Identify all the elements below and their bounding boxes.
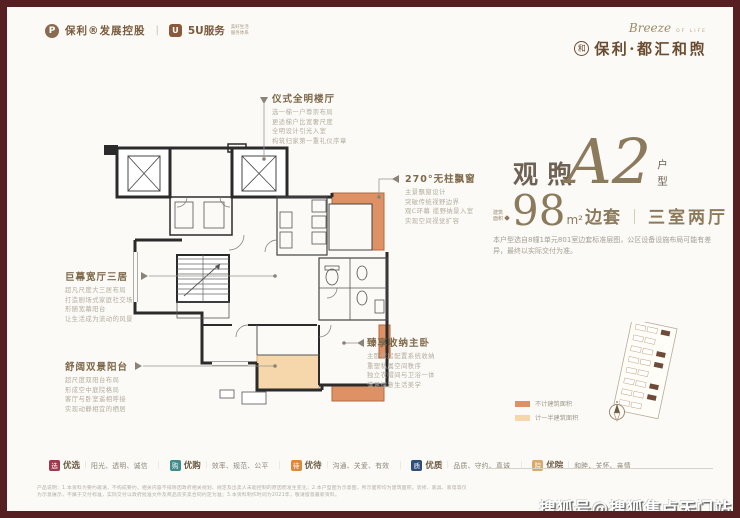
area-spec-row: 建筑 面积 98 m² 边套 ｜ 三室两厅: [493, 193, 728, 229]
feature-name: 优院: [546, 459, 563, 471]
feature-name: 优选: [63, 459, 80, 471]
poly-logo-icon: P: [45, 24, 59, 38]
callout-living-title: 巨幕宽厅三居: [65, 269, 185, 283]
kitchen-appliances: [280, 200, 326, 248]
area-unit: m²: [566, 213, 583, 227]
callout-line: 选一梯一户尊崇布局: [272, 108, 392, 118]
feature-name: 优待: [305, 459, 322, 471]
callout-lobby-title: 仪式全明楼厅: [272, 91, 392, 105]
feature-bar: ｜: [444, 460, 451, 470]
callout-line: 形随宽幕阳台: [65, 305, 185, 315]
area-label-l2: 面积: [493, 216, 503, 222]
legend-swatch-excluded: [515, 401, 530, 407]
callout-line: 形成空中庭院格局: [65, 386, 185, 396]
area-value: 98: [512, 193, 565, 229]
site-plan-building-strip: [613, 322, 677, 419]
features-rule-line: [487, 468, 713, 469]
feature-desc: 沟通、关爱、有效: [333, 460, 390, 470]
callout-line: 实现动静相宜的栖居: [65, 405, 185, 415]
feature-bar: ｜: [82, 460, 89, 470]
area-tag: 边套: [585, 203, 621, 228]
disclaimer-text: 产品说明：1.本资料为要约邀请，不构成要约，相关内容不排除因政府相关规划、规定及…: [37, 485, 471, 499]
header-right-project: Breeze OF LIFE 和 保利·都汇和煦: [574, 17, 707, 59]
feature-icon-youdai: 待: [291, 460, 302, 471]
closet-2: [204, 202, 224, 228]
brand-5u-note-line1: 美好生活: [231, 25, 249, 30]
feature-icon-yougou: 购: [170, 460, 181, 471]
bath-divider: [319, 258, 387, 320]
feature-separator: ｜: [396, 460, 404, 471]
project-seal-icon: 和: [574, 41, 589, 56]
feature-desc: 效率、规范、公平: [212, 460, 269, 470]
callout-master-title: 臻享收纳主卧: [367, 335, 487, 349]
brand-divider: |: [156, 25, 159, 36]
brand-5u-note-line2: 服务体系: [231, 31, 249, 36]
bay-window-area: [332, 193, 384, 250]
site-plan: [582, 322, 712, 442]
unit-description: 本户型选自8幢1单元801室边套标准层图，公区设备设施布局可能有差异，最终以实际…: [493, 235, 721, 257]
feature-youxuan: 选 优选 ｜ 阳光、透明、诚信: [49, 459, 148, 471]
callout-line: 打造剧场式家庭社交场: [65, 296, 185, 306]
callout-line: 满足惬意生活美学: [367, 381, 487, 391]
callout-balcony-title: 舒阔双景阳台: [65, 359, 185, 373]
feature-name: 优购: [184, 459, 201, 471]
project-name: 保利·都汇和煦: [594, 38, 707, 59]
callout-line: 构筑归家第一重礼仪序章: [272, 137, 392, 147]
kitchen: [277, 197, 327, 255]
foyer: [170, 197, 232, 235]
bedroom-north: [329, 204, 372, 250]
brand-poly-development: 保利®发展控股: [65, 23, 146, 38]
feature-youzhi: 质 优质 ｜ 品质、守约、真诚: [411, 459, 510, 471]
watermark: 搜狐号@搜狐焦点天门站: [539, 495, 732, 518]
ac-platform-1: [242, 392, 266, 404]
brand-5u-service: 5U服务: [188, 23, 225, 38]
callout-line: 全明设计引光入室: [272, 127, 392, 137]
script-subtitle: OF LIFE: [676, 29, 707, 34]
floorplan-marketing-page: P 保利®发展控股 | U 5U服务 美好生活 服务体系 Breeze OF L…: [0, 0, 740, 518]
leader-arrow-1: [260, 97, 268, 104]
callout-line: 超凡尺度大三居布局: [65, 286, 185, 296]
5u-logo-icon: U: [169, 24, 182, 37]
feature-name: 优质: [425, 459, 442, 471]
feature-bar: ｜: [203, 460, 210, 470]
feature-youdai: 待 优待 ｜ 沟通、关爱、有效: [291, 459, 390, 471]
callout-line: 独立衣帽间与卫浴一体: [367, 371, 487, 381]
callout-line: 让生活成为流动的风景: [65, 315, 185, 325]
feature-separator: ｜: [155, 460, 163, 471]
legend-label-excluded: 不计建筑面积: [535, 399, 572, 408]
area-label: 建筑 面积: [493, 210, 503, 222]
callout-master-bedroom: 臻享收纳主卧 主卧套房配置系统收纳 重塑私属空间秩序 独立衣帽间与卫浴一体 满足…: [367, 335, 487, 390]
service-features-strip: 选 优选 ｜ 阳光、透明、诚信 ｜ 购 优购 ｜ 效率、规范、公平 ｜ 待 优待…: [49, 459, 631, 471]
feature-separator: ｜: [276, 460, 284, 471]
unit-layout: 三室两厅: [648, 203, 728, 228]
balcony-half-area: [257, 355, 319, 390]
callout-lobby: 仪式全明楼厅 选一梯一户尊崇布局 更适梯户比宽奢尺度 全明设计引光入室 构筑归家…: [272, 91, 392, 146]
callout-line: 超尺度双阳台布局: [65, 376, 185, 386]
callout-line: 更适梯户比宽奢尺度: [272, 118, 392, 128]
feature-icon-youzhi: 质: [411, 460, 422, 471]
feature-youyuan: 院 优院 ｜ 和睦、关怀、亲情: [532, 459, 631, 471]
feature-icon-youxuan: 选: [49, 460, 60, 471]
closet-1: [175, 202, 193, 228]
callout-line: 重塑私属空间秩序: [367, 362, 487, 372]
callout-line: 客厅与卧室遥相呼接: [65, 395, 185, 405]
plan-legend: 不计建筑面积 计一半建筑面积: [515, 399, 578, 427]
door-arcs: [229, 235, 337, 337]
feature-desc: 阳光、透明、诚信: [91, 460, 148, 470]
legend-label-half: 计一半建筑面积: [535, 413, 578, 422]
spec-divider: ｜: [627, 206, 642, 227]
brand-5u-note: 美好生活 服务体系: [231, 25, 249, 36]
feature-yougou: 购 优购 ｜ 效率、规范、公平: [170, 459, 269, 471]
bath-fixtures: [325, 266, 384, 313]
callout-bay-title: 270°无柱飘窗: [405, 171, 525, 185]
diamond-icon: [504, 215, 510, 221]
callout-balcony: 舒阔双景阳台 超尺度双阳台布局 形成空中庭院格局 客厅与卧室遥相呼接 实现动静相…: [65, 359, 185, 414]
ac-platform-2: [220, 390, 234, 398]
script-flourish: Breeze: [629, 21, 671, 35]
header-left-brands: P 保利®发展控股 | U 5U服务 美好生活 服务体系: [45, 23, 249, 38]
unit-type-label: 户型: [655, 159, 670, 192]
feature-bar: ｜: [324, 460, 331, 470]
legend-swatch-half: [515, 415, 530, 421]
unit-model: A2: [567, 125, 651, 198]
legend-row-full: 不计建筑面积: [515, 399, 578, 408]
bath-block: [319, 258, 387, 320]
callout-line: 主卧套房配置系统收纳: [367, 352, 487, 362]
callout-living-room: 巨幕宽厅三居 超凡尺度大三居布局 打造剧场式家庭社交场 形随宽幕阳台 让生活成为…: [65, 269, 185, 324]
legend-row-half: 计一半建筑面积: [515, 413, 578, 422]
